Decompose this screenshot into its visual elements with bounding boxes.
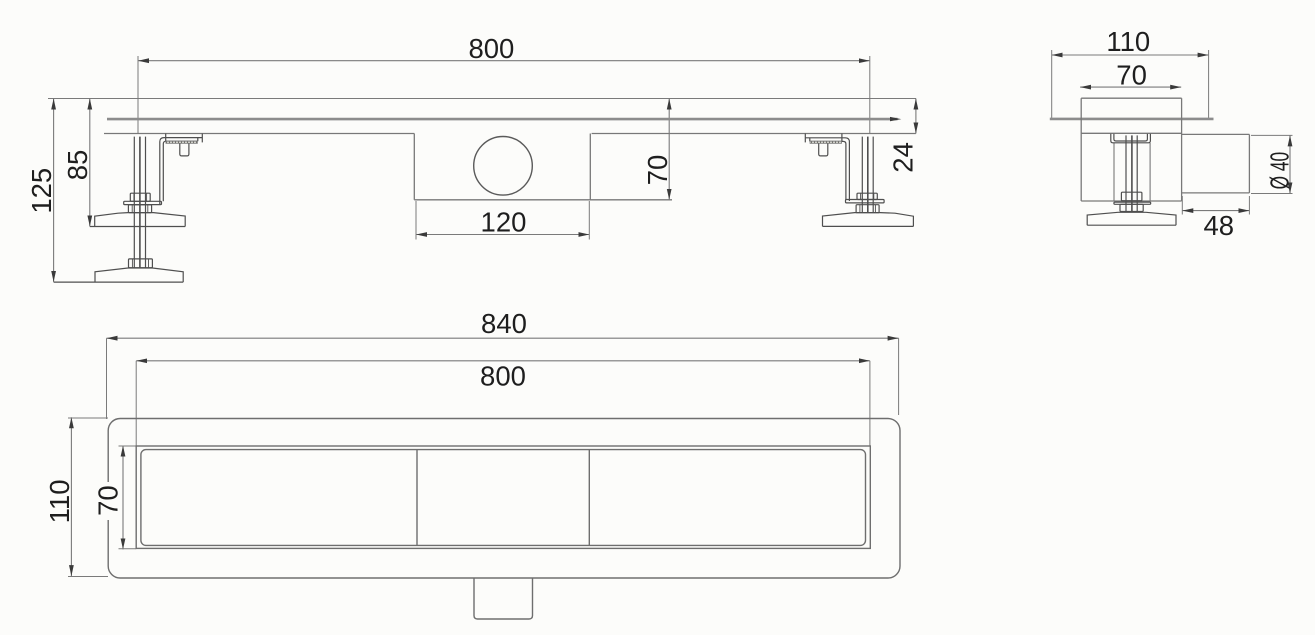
svg-text:125: 125 xyxy=(26,168,57,214)
svg-text:800: 800 xyxy=(480,361,526,392)
svg-text:110: 110 xyxy=(1106,26,1150,57)
svg-text:24: 24 xyxy=(888,142,919,173)
svg-text:70: 70 xyxy=(642,155,673,186)
svg-text:800: 800 xyxy=(468,33,514,64)
svg-text:110: 110 xyxy=(44,479,75,523)
svg-text:70: 70 xyxy=(1116,59,1147,90)
svg-text:85: 85 xyxy=(62,150,93,181)
svg-text:70: 70 xyxy=(93,485,124,516)
svg-text:48: 48 xyxy=(1204,210,1235,241)
svg-text:Ø 40: Ø 40 xyxy=(1265,152,1295,190)
svg-text:120: 120 xyxy=(481,207,527,238)
svg-text:840: 840 xyxy=(481,308,527,339)
